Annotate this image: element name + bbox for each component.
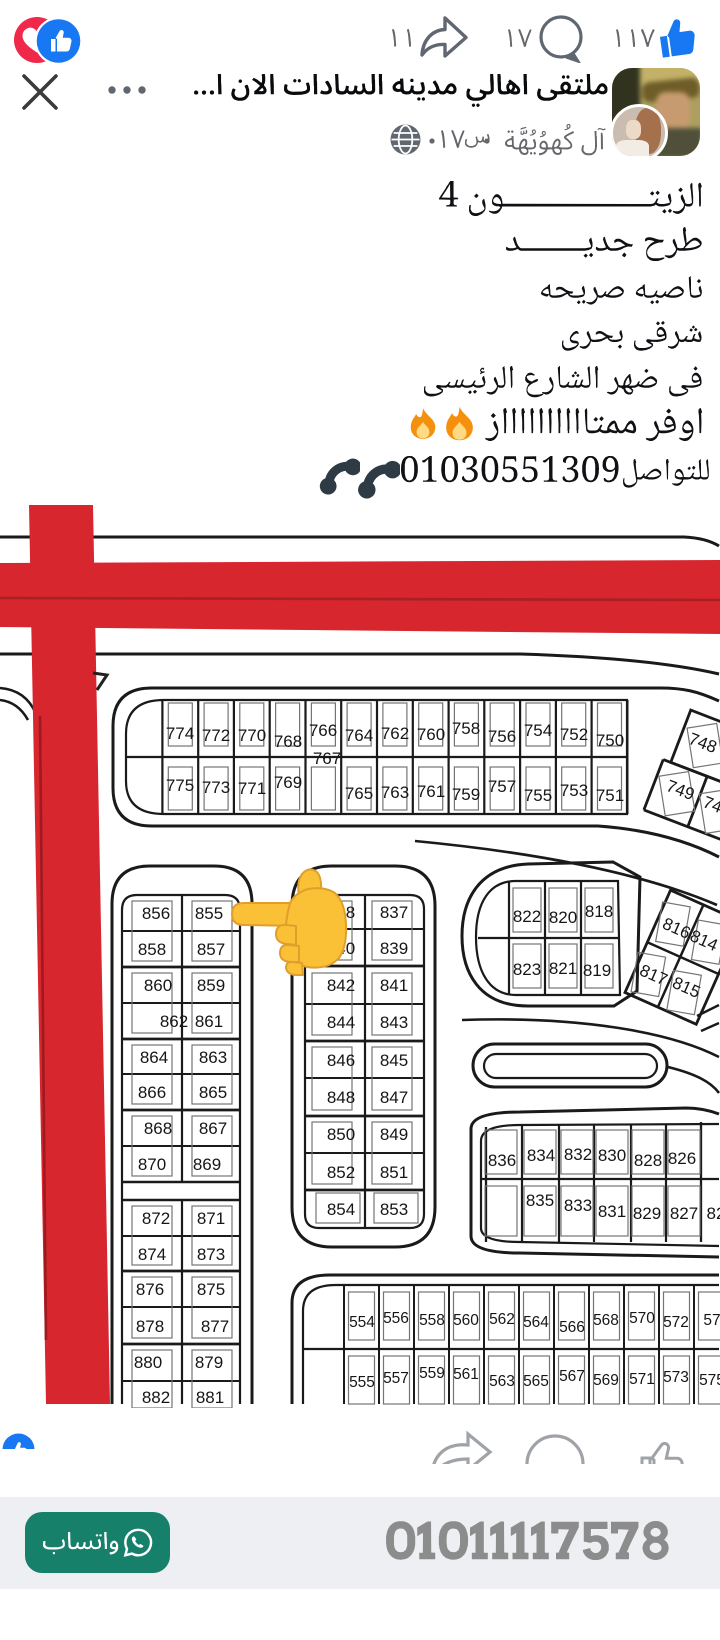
svg-text:573: 573 — [663, 1369, 689, 1386]
svg-text:834: 834 — [527, 1146, 555, 1165]
svg-text:564: 564 — [523, 1314, 549, 1331]
svg-text:875: 875 — [197, 1280, 225, 1299]
svg-text:570: 570 — [629, 1310, 655, 1327]
svg-text:763: 763 — [381, 783, 409, 802]
svg-text:871: 871 — [197, 1209, 225, 1228]
svg-text:841: 841 — [380, 976, 408, 995]
svg-text:872: 872 — [142, 1209, 170, 1228]
svg-text:864: 864 — [140, 1048, 168, 1067]
svg-text:842: 842 — [327, 976, 355, 995]
svg-text:563: 563 — [489, 1373, 515, 1390]
svg-text:882: 882 — [142, 1388, 170, 1407]
svg-text:755: 755 — [524, 786, 552, 805]
svg-text:876: 876 — [136, 1280, 164, 1299]
svg-text:772: 772 — [202, 726, 230, 745]
svg-text:835: 835 — [526, 1191, 554, 1210]
svg-text:826: 826 — [668, 1149, 696, 1168]
svg-text:768: 768 — [274, 732, 302, 751]
svg-text:567: 567 — [559, 1368, 585, 1385]
svg-text:860: 860 — [144, 976, 172, 995]
svg-text:836: 836 — [488, 1151, 516, 1170]
svg-text:879: 879 — [195, 1353, 223, 1372]
svg-text:868: 868 — [144, 1119, 172, 1138]
svg-text:853: 853 — [380, 1200, 408, 1219]
svg-text:843: 843 — [380, 1013, 408, 1032]
svg-text:765: 765 — [345, 784, 373, 803]
svg-text:858: 858 — [138, 940, 166, 959]
svg-text:822: 822 — [513, 907, 541, 926]
svg-text:856: 856 — [142, 904, 170, 923]
svg-text:569: 569 — [593, 1372, 619, 1389]
svg-text:773: 773 — [202, 778, 230, 797]
svg-text:831: 831 — [598, 1202, 626, 1221]
svg-text:575: 575 — [699, 1372, 720, 1389]
svg-text:845: 845 — [380, 1051, 408, 1070]
svg-text:862: 862 — [160, 1012, 188, 1031]
svg-text:752: 752 — [560, 725, 588, 744]
svg-text:873: 873 — [197, 1245, 225, 1264]
svg-text:753: 753 — [560, 781, 588, 800]
svg-text:774: 774 — [166, 724, 194, 743]
svg-text:761: 761 — [417, 782, 445, 801]
svg-text:814: 814 — [687, 926, 720, 955]
svg-text:754: 754 — [524, 721, 552, 740]
svg-text:562: 562 — [489, 1311, 515, 1328]
svg-text:555: 555 — [349, 1374, 375, 1391]
svg-text:865: 865 — [199, 1083, 227, 1102]
svg-text:866: 866 — [138, 1083, 166, 1102]
svg-text:82: 82 — [707, 1204, 720, 1223]
svg-text:767: 767 — [313, 749, 341, 768]
svg-text:823: 823 — [513, 960, 541, 979]
svg-text:830: 830 — [598, 1146, 626, 1165]
svg-text:565: 565 — [523, 1373, 549, 1390]
svg-text:751: 751 — [596, 786, 624, 805]
svg-text:827: 827 — [670, 1204, 698, 1223]
svg-text:756: 756 — [488, 727, 516, 746]
svg-text:760: 760 — [417, 725, 445, 744]
svg-text:817: 817 — [637, 961, 671, 990]
svg-text:749: 749 — [664, 776, 697, 804]
svg-text:771: 771 — [238, 779, 266, 798]
svg-text:854: 854 — [327, 1200, 355, 1219]
svg-text:560: 560 — [453, 1312, 479, 1329]
svg-text:861: 861 — [195, 1012, 223, 1031]
svg-text:837: 837 — [380, 903, 408, 922]
svg-text:878: 878 — [136, 1317, 164, 1336]
svg-text:568: 568 — [593, 1312, 619, 1329]
svg-text:863: 863 — [199, 1048, 227, 1067]
svg-text:852: 852 — [327, 1163, 355, 1182]
svg-text:855: 855 — [195, 904, 223, 923]
svg-text:557: 557 — [383, 1370, 409, 1387]
svg-text:833: 833 — [564, 1196, 592, 1215]
svg-text:857: 857 — [197, 940, 225, 959]
svg-text:561: 561 — [453, 1366, 479, 1383]
svg-text:867: 867 — [199, 1119, 227, 1138]
svg-text:832: 832 — [564, 1145, 592, 1164]
svg-text:821: 821 — [549, 959, 577, 978]
svg-text:775: 775 — [166, 776, 194, 795]
svg-text:572: 572 — [663, 1314, 689, 1331]
svg-text:57: 57 — [703, 1312, 720, 1329]
svg-text:851: 851 — [380, 1163, 408, 1182]
svg-text:769: 769 — [274, 773, 302, 792]
svg-text:870: 870 — [138, 1155, 166, 1174]
svg-text:558: 558 — [419, 1312, 445, 1329]
svg-text:554: 554 — [349, 1314, 375, 1331]
svg-text:846: 846 — [327, 1051, 355, 1070]
svg-text:770: 770 — [238, 726, 266, 745]
svg-text:874: 874 — [138, 1245, 166, 1264]
svg-text:764: 764 — [345, 726, 373, 745]
svg-text:757: 757 — [488, 777, 516, 796]
svg-text:566: 566 — [559, 1319, 585, 1336]
svg-text:759: 759 — [452, 785, 480, 804]
svg-text:571: 571 — [629, 1371, 655, 1388]
svg-text:847: 847 — [380, 1088, 408, 1107]
svg-text:828: 828 — [634, 1151, 662, 1170]
svg-text:820: 820 — [549, 908, 577, 927]
svg-text:818: 818 — [585, 902, 613, 921]
svg-text:758: 758 — [452, 719, 480, 738]
svg-text:815: 815 — [669, 973, 703, 1002]
svg-text:877: 877 — [201, 1317, 229, 1336]
svg-text:869: 869 — [193, 1155, 221, 1174]
svg-text:766: 766 — [309, 721, 337, 740]
svg-text:880: 880 — [134, 1353, 162, 1372]
svg-text:750: 750 — [596, 731, 624, 750]
svg-text:829: 829 — [633, 1204, 661, 1223]
svg-text:839: 839 — [380, 939, 408, 958]
svg-text:559: 559 — [419, 1365, 445, 1382]
svg-text:762: 762 — [381, 724, 409, 743]
svg-text:556: 556 — [383, 1310, 409, 1327]
svg-text:849: 849 — [380, 1125, 408, 1144]
svg-text:859: 859 — [197, 976, 225, 995]
svg-text:881: 881 — [196, 1388, 224, 1407]
svg-text:848: 848 — [327, 1088, 355, 1107]
svg-text:819: 819 — [583, 961, 611, 980]
svg-text:844: 844 — [327, 1013, 355, 1032]
svg-text:850: 850 — [327, 1125, 355, 1144]
